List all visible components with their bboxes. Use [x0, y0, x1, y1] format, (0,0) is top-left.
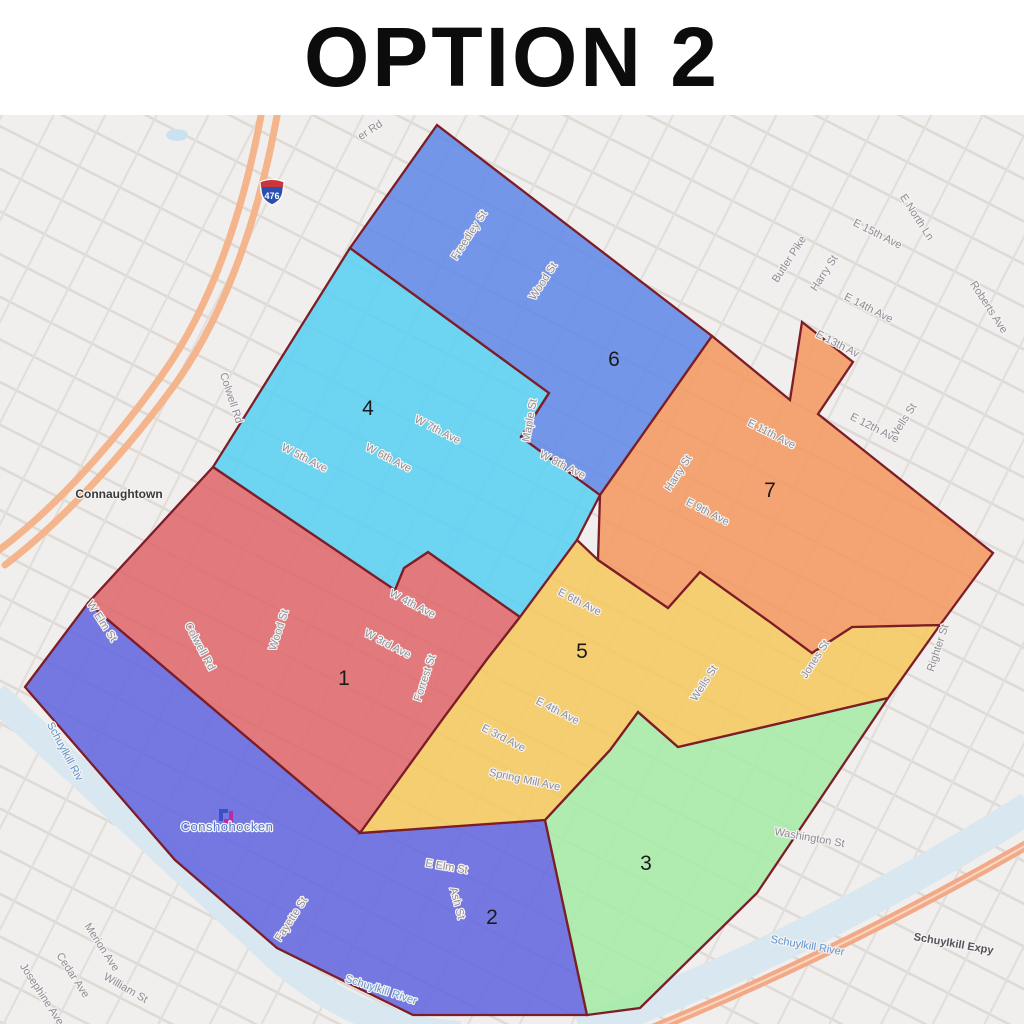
- district-3-number-label: 3: [640, 852, 652, 875]
- page-title: OPTION 2: [304, 9, 720, 106]
- district-map: 476 er RdFreedley StWood StButler PikeHa…: [0, 115, 1024, 1024]
- district-5-number-label: 5: [576, 640, 588, 663]
- map-label-connaughtown: Connaughtown: [75, 487, 162, 501]
- pond: [166, 129, 188, 141]
- map-label-conshohocken: Conshohocken: [181, 819, 274, 834]
- svg-text:476: 476: [264, 191, 279, 201]
- map-canvas[interactable]: 476 er RdFreedley StWood StButler PikeHa…: [0, 115, 1024, 1024]
- district-4-number-label: 4: [362, 397, 374, 420]
- district-7-number-label: 7: [764, 479, 776, 502]
- title-band: OPTION 2: [0, 0, 1024, 115]
- district-1-number-label: 1: [338, 667, 350, 690]
- district-6-number-label: 6: [608, 348, 620, 371]
- district-2-number-label: 2: [486, 906, 498, 929]
